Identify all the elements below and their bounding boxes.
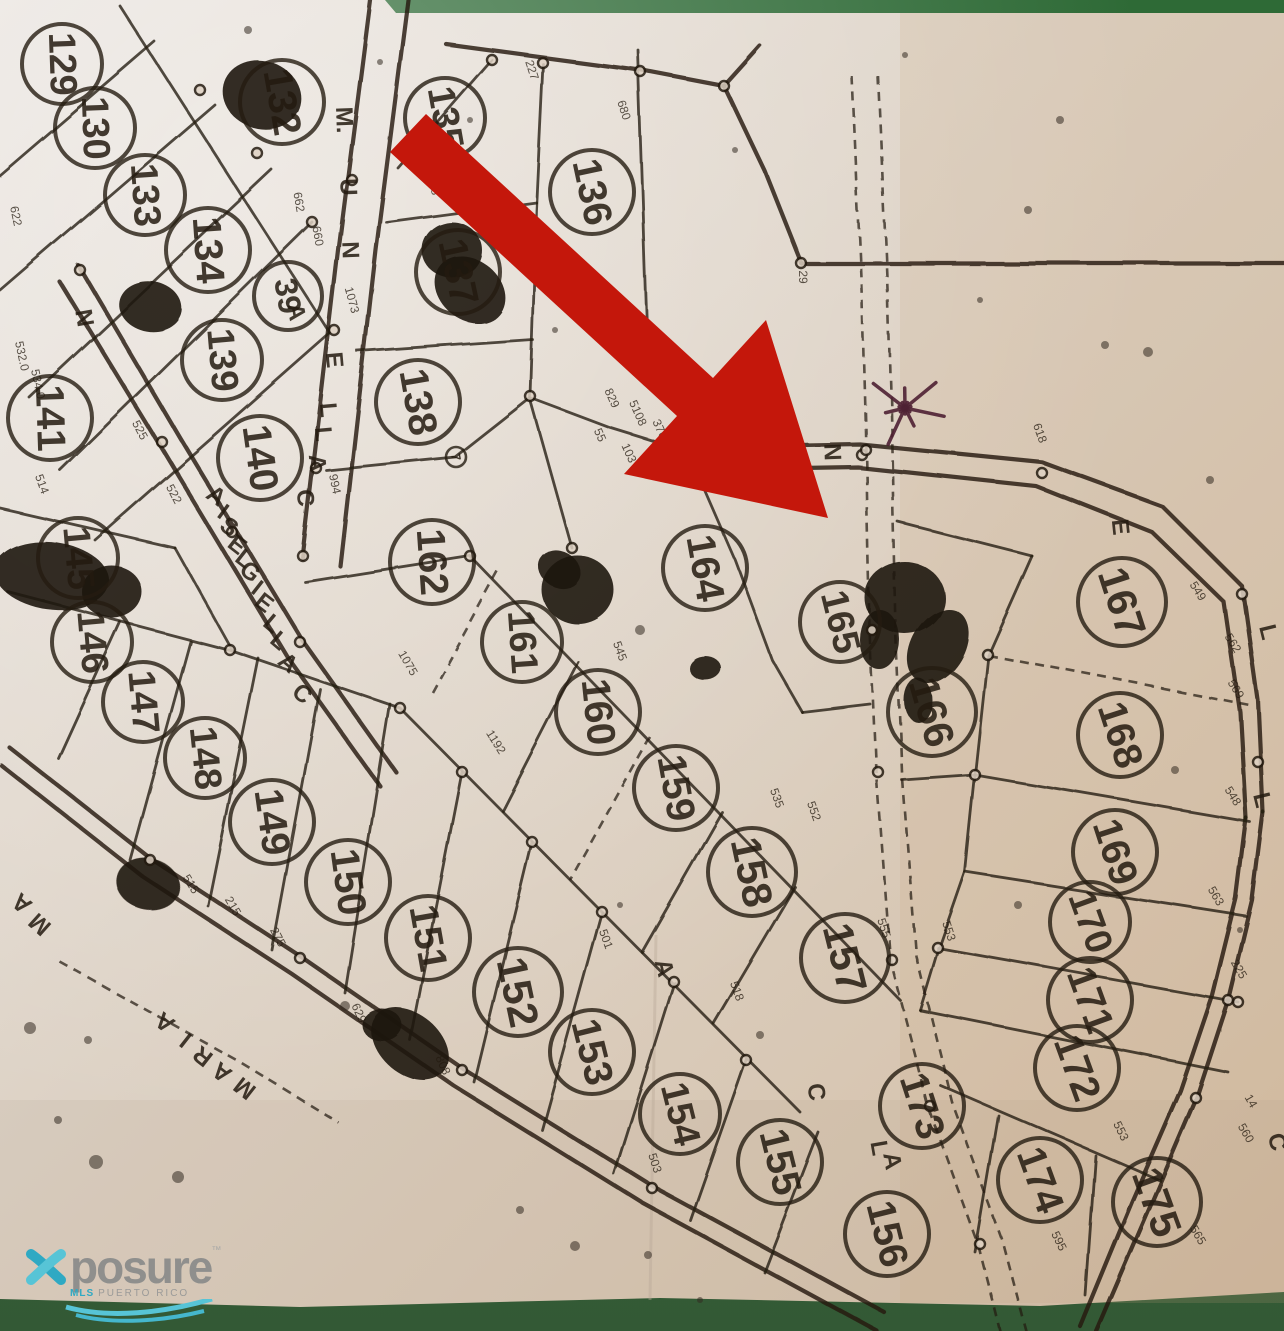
lot-number: 139 — [198, 327, 245, 394]
street-letter: U — [334, 178, 362, 196]
paper-speck — [1143, 347, 1153, 357]
survey-node — [1237, 589, 1247, 599]
lot-number: 147 — [119, 669, 166, 736]
paper-speck — [54, 1116, 62, 1124]
street-letter: L — [314, 402, 342, 419]
lot-number: 141 — [27, 384, 73, 452]
ink-blob — [689, 656, 721, 680]
paper-speck — [377, 59, 383, 65]
survey-node — [75, 265, 85, 275]
lot-number: 133 — [122, 162, 168, 228]
xposure-x-icon — [24, 1244, 68, 1288]
survey-node — [1223, 995, 1233, 1005]
street-letter: C — [291, 488, 319, 508]
survey-node — [873, 767, 883, 777]
survey-node — [298, 551, 308, 561]
paper-speck — [902, 52, 908, 58]
lot-number: 149 — [246, 786, 299, 858]
paper-speck — [1237, 927, 1243, 933]
survey-node — [861, 445, 871, 455]
lot-number: 160 — [573, 677, 624, 748]
paper-speck — [467, 117, 473, 123]
mls-puerto-rico-label: MLSPUERTO RICO — [70, 1288, 254, 1299]
survey-node — [635, 66, 645, 76]
street-letter: E — [320, 351, 348, 369]
paper-speck — [1101, 341, 1109, 349]
street-letter: N — [336, 241, 364, 259]
lot-number: 161 — [499, 609, 545, 675]
survey-node — [933, 943, 943, 953]
street-letter: E — [1106, 518, 1135, 537]
survey-node — [1037, 468, 1047, 478]
street-letter: A — [303, 453, 331, 473]
survey-node — [525, 391, 535, 401]
survey-node — [1233, 997, 1243, 1007]
lot-number: 145 — [54, 525, 101, 592]
swoosh-icon — [64, 1299, 214, 1325]
paper-speck — [635, 625, 645, 635]
survey-node — [538, 58, 548, 68]
paper-speck — [89, 1155, 103, 1169]
paper-speck — [977, 297, 983, 303]
lot-number: 140 — [234, 422, 287, 494]
paper-speck — [244, 26, 252, 34]
survey-node — [295, 953, 305, 963]
survey-node — [741, 1055, 751, 1065]
street-letter: M. — [330, 106, 358, 134]
paper-speck — [340, 1001, 350, 1011]
survey-node — [597, 907, 607, 917]
paper-speck — [732, 147, 738, 153]
paper-speck — [552, 327, 558, 333]
survey-node — [796, 258, 806, 268]
lot-number: 162 — [408, 527, 457, 597]
plat-map-photo: CALLENUM.CALLEIGLESIAMARIAMANNELLCCAALA6… — [0, 0, 1284, 1331]
paper-speck — [570, 1241, 580, 1251]
survey-node — [487, 55, 497, 65]
region-label: PUERTO RICO — [98, 1288, 189, 1299]
plat-map-canvas: CALLENUM.CALLEIGLESIAMARIAMANNELLCCAALA6… — [0, 0, 1284, 1331]
survey-node — [457, 767, 467, 777]
paper-speck — [1171, 766, 1179, 774]
paper-speck — [516, 1206, 524, 1214]
street-letter: N — [818, 443, 846, 461]
paper-speck — [617, 902, 623, 908]
survey-node — [195, 85, 205, 95]
survey-node — [867, 625, 877, 635]
lot-number: 130 — [73, 96, 117, 161]
survey-node — [225, 645, 235, 655]
survey-node — [252, 148, 262, 158]
paper-speck — [756, 1031, 764, 1039]
paper-speck — [1056, 116, 1064, 124]
survey-node — [1191, 1093, 1201, 1103]
survey-node — [669, 977, 679, 987]
survey-node — [975, 1239, 985, 1249]
lot-number: 39 — [267, 275, 309, 316]
lot-number: 129 — [40, 32, 84, 97]
xposure-wordmark: posure — [70, 1244, 211, 1290]
paper-speck — [644, 1251, 652, 1259]
survey-node — [983, 650, 993, 660]
survey-node — [970, 770, 980, 780]
lot-number: 146 — [68, 609, 115, 676]
lot-number: 150 — [322, 846, 375, 918]
survey-node — [527, 837, 537, 847]
survey-node — [647, 1183, 657, 1193]
paper-speck — [1206, 476, 1214, 484]
xposure-logo: posure ™ MLSPUERTO RICO — [24, 1244, 254, 1325]
survey-node — [145, 855, 155, 865]
survey-node — [457, 1065, 467, 1075]
lot-number: 148 — [181, 724, 229, 791]
trademark-symbol: ™ — [211, 1246, 221, 1256]
lot-number: 134 — [184, 215, 233, 285]
paper-speck — [697, 1297, 703, 1303]
paper-speck — [84, 1036, 92, 1044]
measurement-label: 29 — [796, 270, 810, 284]
survey-node — [157, 437, 167, 447]
paper-speck — [172, 1171, 184, 1183]
survey-node — [329, 325, 339, 335]
paper-speck — [24, 1022, 36, 1034]
paper-speck — [1024, 206, 1032, 214]
survey-node — [295, 637, 305, 647]
mls-label: MLS — [70, 1288, 94, 1299]
paper-speck — [1014, 901, 1022, 909]
street-letter: L — [309, 426, 337, 443]
survey-node — [567, 543, 577, 553]
survey-node — [395, 703, 405, 713]
survey-node — [719, 81, 729, 91]
survey-node — [1253, 757, 1263, 767]
